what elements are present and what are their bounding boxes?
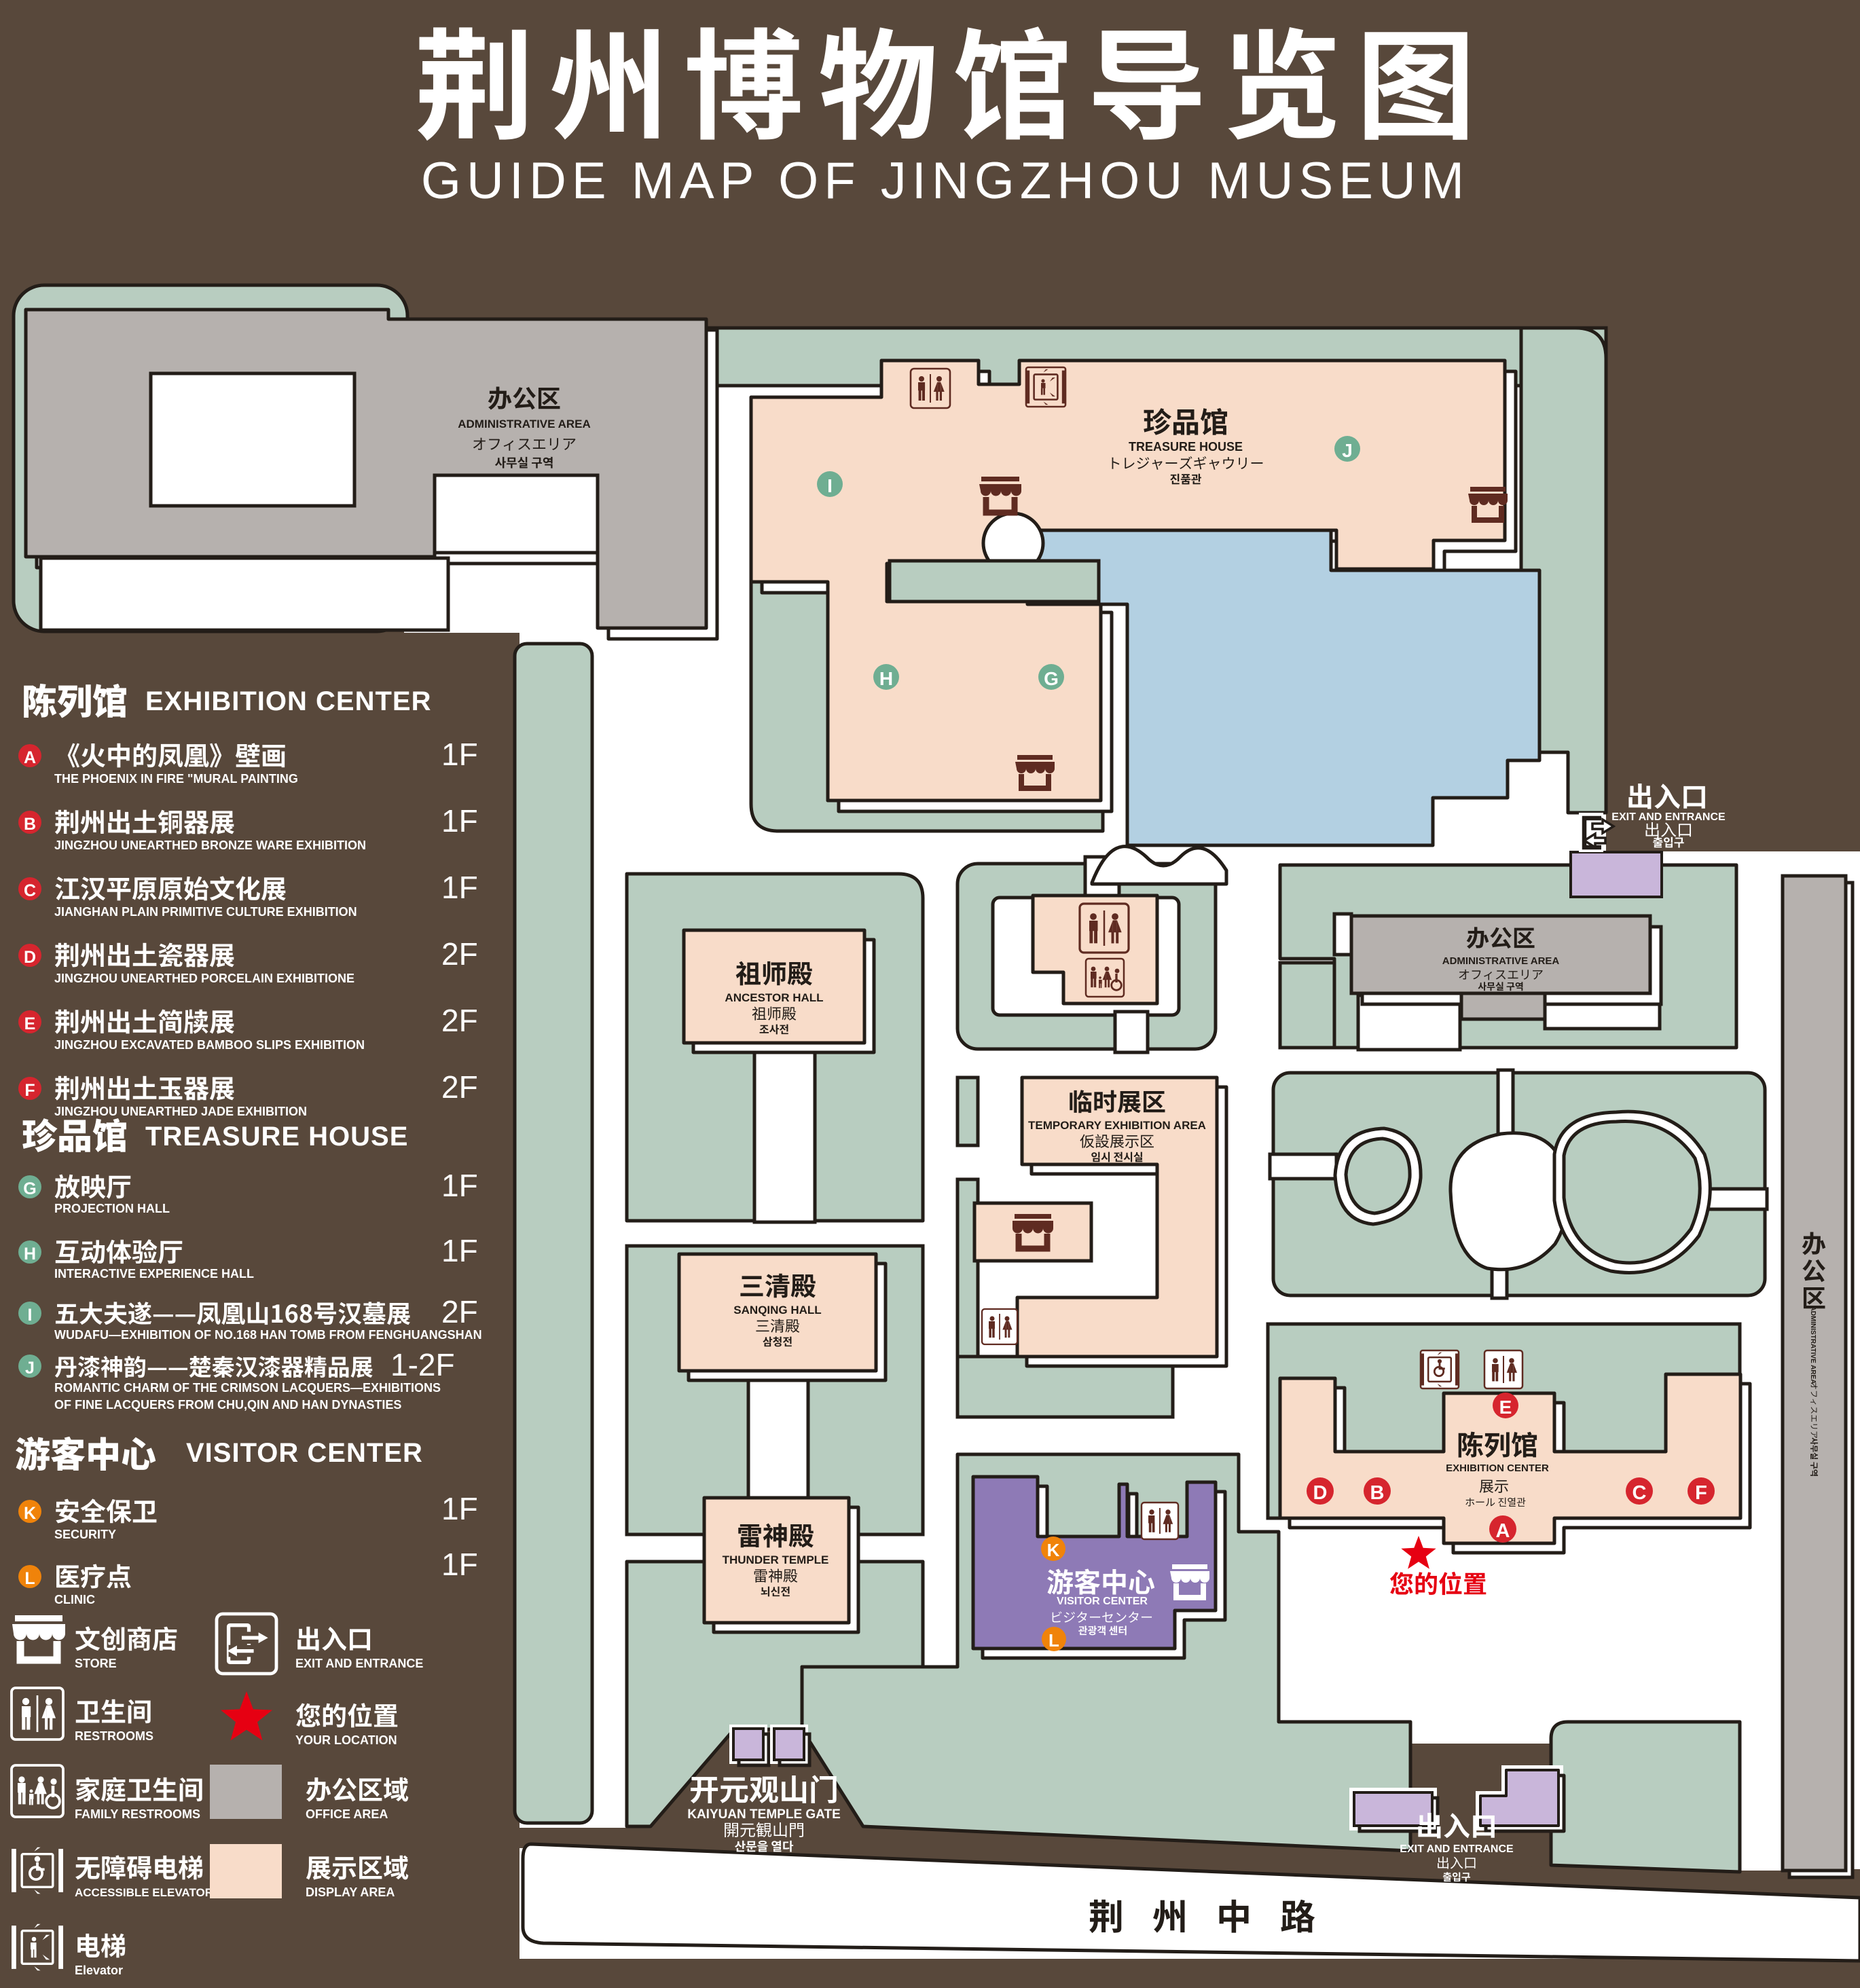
- svg-text:G: G: [23, 1179, 36, 1198]
- svg-text:JINGZHOU UNEARTHED JADE EXHIBI: JINGZHOU UNEARTHED JADE EXHIBITION: [54, 1105, 307, 1118]
- svg-text:A: A: [1496, 1520, 1510, 1542]
- svg-text:STORE: STORE: [75, 1657, 117, 1670]
- svg-text:H: H: [24, 1245, 36, 1264]
- svg-text:GUIDE MAP OF JINGZHOU MUSEUM: GUIDE MAP OF JINGZHOU MUSEUM: [421, 152, 1470, 210]
- svg-text:ADMINISTRATIVE AREA: ADMINISTRATIVE AREA: [458, 418, 591, 430]
- svg-text:SECURITY: SECURITY: [54, 1528, 116, 1541]
- svg-text:1F: 1F: [441, 803, 478, 839]
- svg-text:ADMINISTRATIVE AREA: ADMINISTRATIVE AREA: [1809, 1306, 1817, 1384]
- svg-text:F: F: [24, 1081, 35, 1100]
- svg-text:EXHIBITION CENTER: EXHIBITION CENTER: [145, 686, 431, 716]
- svg-text:THE PHOENIX IN FIRE "MURAL PAI: THE PHOENIX IN FIRE "MURAL PAINTING: [54, 772, 298, 786]
- svg-text:JINGZHOU UNEARTHED BRONZE WARE: JINGZHOU UNEARTHED BRONZE WARE EXHIBITIO…: [54, 839, 366, 852]
- svg-text:1F: 1F: [441, 1168, 478, 1203]
- svg-text:E: E: [1499, 1397, 1512, 1418]
- svg-text:1F: 1F: [441, 1547, 478, 1582]
- svg-text:EXIT AND ENTRANCE: EXIT AND ENTRANCE: [295, 1657, 423, 1670]
- svg-text:L: L: [24, 1569, 35, 1588]
- svg-text:A: A: [24, 748, 36, 767]
- svg-text:1F: 1F: [441, 870, 478, 905]
- svg-text:2F: 2F: [441, 1294, 478, 1329]
- svg-text:B: B: [1370, 1482, 1385, 1504]
- svg-text:OFFICE AREA: OFFICE AREA: [306, 1807, 388, 1821]
- svg-text:ADMINISTRATIVE AREA: ADMINISTRATIVE AREA: [1442, 955, 1560, 967]
- svg-text:FAMILY RESTROOMS: FAMILY RESTROOMS: [75, 1807, 200, 1821]
- svg-text:I: I: [28, 1306, 33, 1325]
- svg-text:JINGZHOU EXCAVATED BAMBOO SLIP: JINGZHOU EXCAVATED BAMBOO SLIPS EXHIBITI…: [54, 1038, 365, 1052]
- svg-text:1F: 1F: [441, 1491, 478, 1526]
- svg-text:2F: 2F: [441, 1003, 478, 1038]
- svg-text:ACCESSIBLE ELEVATOR: ACCESSIBLE ELEVATOR: [75, 1886, 213, 1899]
- svg-text:PROJECTION HALL: PROJECTION HALL: [54, 1202, 170, 1215]
- svg-text:2F: 2F: [441, 1069, 478, 1105]
- svg-text:F: F: [1695, 1482, 1707, 1504]
- svg-text:K: K: [24, 1504, 36, 1523]
- svg-text:YOUR LOCATION: YOUR LOCATION: [295, 1733, 397, 1747]
- svg-text:H: H: [879, 668, 893, 689]
- svg-text:1F: 1F: [441, 737, 478, 772]
- svg-text:K: K: [1047, 1540, 1060, 1560]
- svg-text:EXHIBITION CENTER: EXHIBITION CENTER: [1446, 1462, 1549, 1474]
- svg-text:B: B: [24, 815, 36, 834]
- svg-text:TREASURE HOUSE: TREASURE HOUSE: [145, 1122, 408, 1152]
- svg-text:2F: 2F: [441, 936, 478, 972]
- svg-text:J: J: [1342, 440, 1353, 461]
- svg-text:VISITOR CENTER: VISITOR CENTER: [1057, 1596, 1148, 1607]
- svg-text:OF FINE LACQUERS FROM CHU,QIN: OF FINE LACQUERS FROM CHU,QIN AND HAN DY…: [54, 1398, 401, 1412]
- svg-text:WUDAFU—EXHIBITION OF NO.168 HA: WUDAFU—EXHIBITION OF NO.168 HAN TOMB FRO…: [54, 1328, 482, 1342]
- svg-text:ANCESTOR HALL: ANCESTOR HALL: [725, 991, 823, 1004]
- svg-text:JIANGHAN PLAIN PRIMITIVE CULTU: JIANGHAN PLAIN PRIMITIVE CULTURE EXHIBIT…: [54, 905, 357, 919]
- svg-text:THUNDER TEMPLE: THUNDER TEMPLE: [723, 1553, 829, 1566]
- svg-text:TREASURE HOUSE: TREASURE HOUSE: [1129, 440, 1243, 454]
- svg-text:VISITOR CENTER: VISITOR CENTER: [186, 1438, 423, 1468]
- svg-text:J: J: [25, 1359, 35, 1378]
- svg-text:D: D: [24, 948, 36, 967]
- svg-text:ROMANTIC CHARM OF THE CRIMSON: ROMANTIC CHARM OF THE CRIMSON LACQUERS—E…: [54, 1381, 441, 1395]
- svg-text:1F: 1F: [441, 1233, 478, 1268]
- svg-text:TEMPORARY EXHIBITION AREA: TEMPORARY EXHIBITION AREA: [1028, 1119, 1206, 1132]
- svg-text:JINGZHOU UNEARTHED PORCELAIN E: JINGZHOU UNEARTHED PORCELAIN EXHIBITIONE: [54, 972, 354, 985]
- svg-text:CLINIC: CLINIC: [54, 1593, 95, 1606]
- svg-text:1-2F: 1-2F: [390, 1347, 455, 1382]
- svg-text:DISPLAY AREA: DISPLAY AREA: [306, 1885, 395, 1899]
- svg-text:C: C: [24, 881, 36, 900]
- svg-text:EXIT AND ENTRANCE: EXIT AND ENTRANCE: [1400, 1843, 1514, 1855]
- svg-text:SANQING HALL: SANQING HALL: [733, 1304, 821, 1317]
- svg-text:L: L: [1048, 1630, 1059, 1651]
- svg-text:INTERACTIVE EXPERIENCE HALL: INTERACTIVE EXPERIENCE HALL: [54, 1267, 254, 1281]
- svg-text:C: C: [1633, 1482, 1647, 1504]
- svg-text:I: I: [827, 475, 833, 496]
- svg-text:EXIT AND ENTRANCE: EXIT AND ENTRANCE: [1611, 811, 1726, 823]
- svg-text:RESTROOMS: RESTROOMS: [75, 1729, 153, 1743]
- svg-text:D: D: [1313, 1482, 1328, 1504]
- svg-text:Elevator: Elevator: [75, 1964, 123, 1977]
- svg-text:KAIYUAN TEMPLE GATE: KAIYUAN TEMPLE GATE: [687, 1807, 841, 1822]
- svg-text:G: G: [1044, 668, 1059, 689]
- svg-text:E: E: [24, 1014, 36, 1033]
